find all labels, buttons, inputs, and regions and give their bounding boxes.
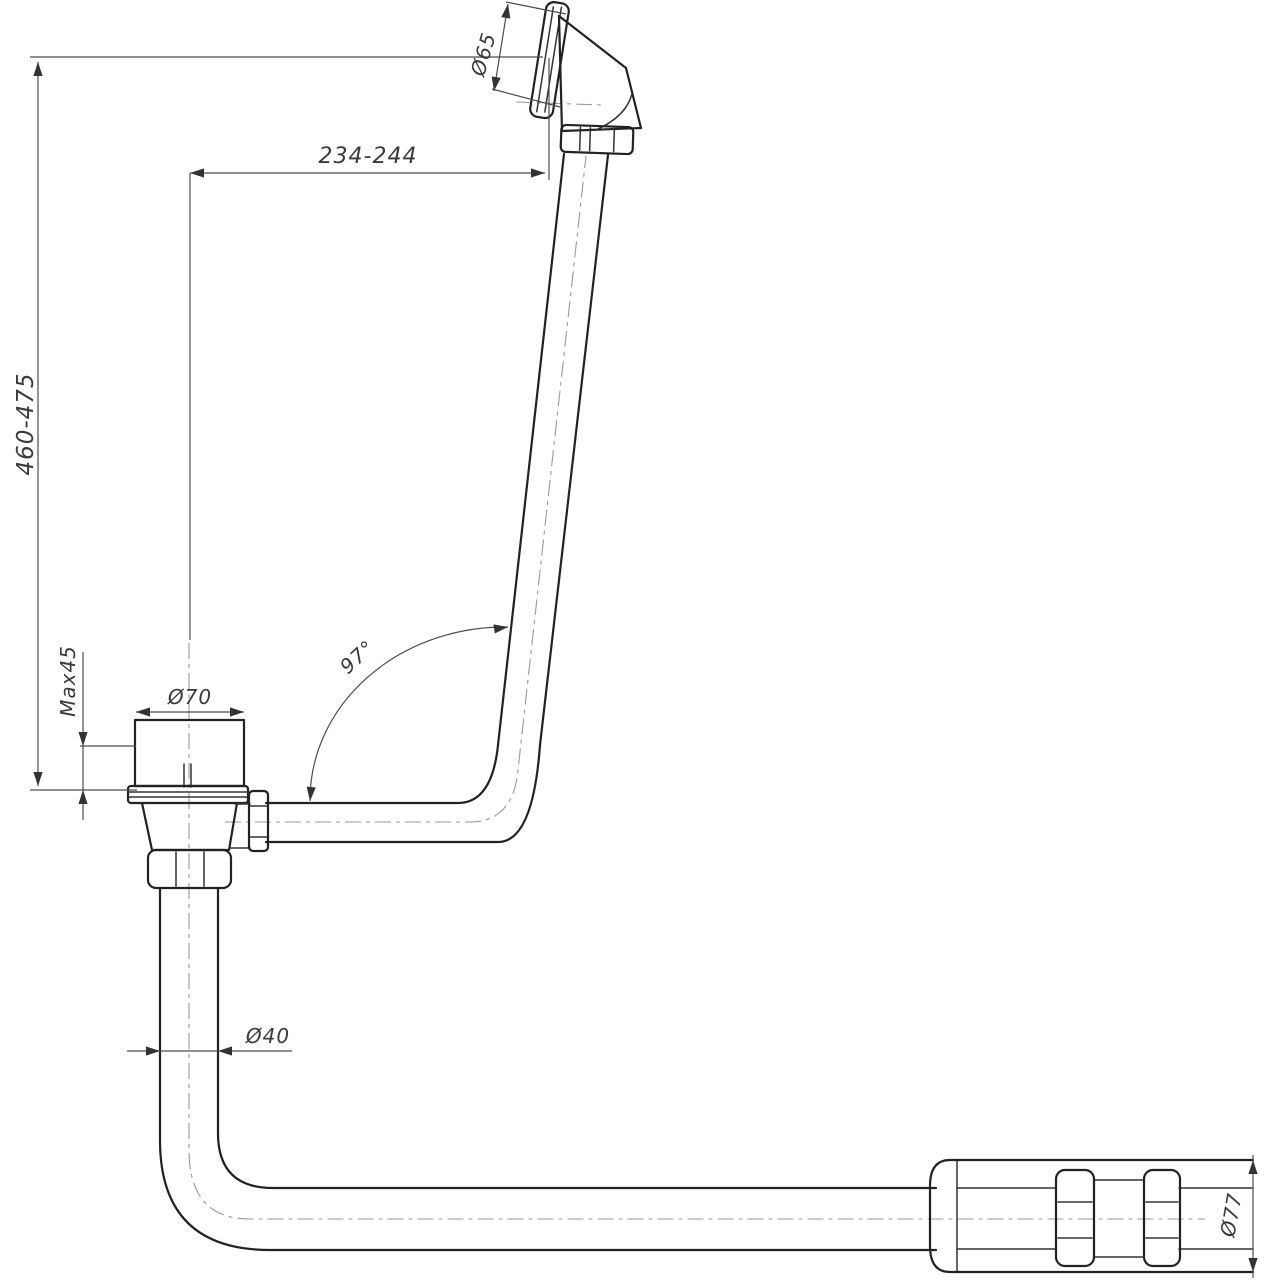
dim-label-width-range: 234-244 — [319, 144, 418, 169]
dim-label-max-thickness: Max45 — [56, 645, 80, 717]
technical-drawing: 460-475 Max45 234-244 Ø65 Ø70 97° — [0, 0, 1280, 1280]
dim-label-height-range: 460-475 — [13, 372, 39, 475]
drawing-canvas: 460-475 Max45 234-244 Ø65 Ø70 97° — [0, 0, 1280, 1280]
background — [0, 0, 1280, 1280]
dim-label-pipe-diameter: Ø40 — [245, 1024, 290, 1048]
dim-label-waste-diameter: Ø70 — [167, 685, 212, 709]
